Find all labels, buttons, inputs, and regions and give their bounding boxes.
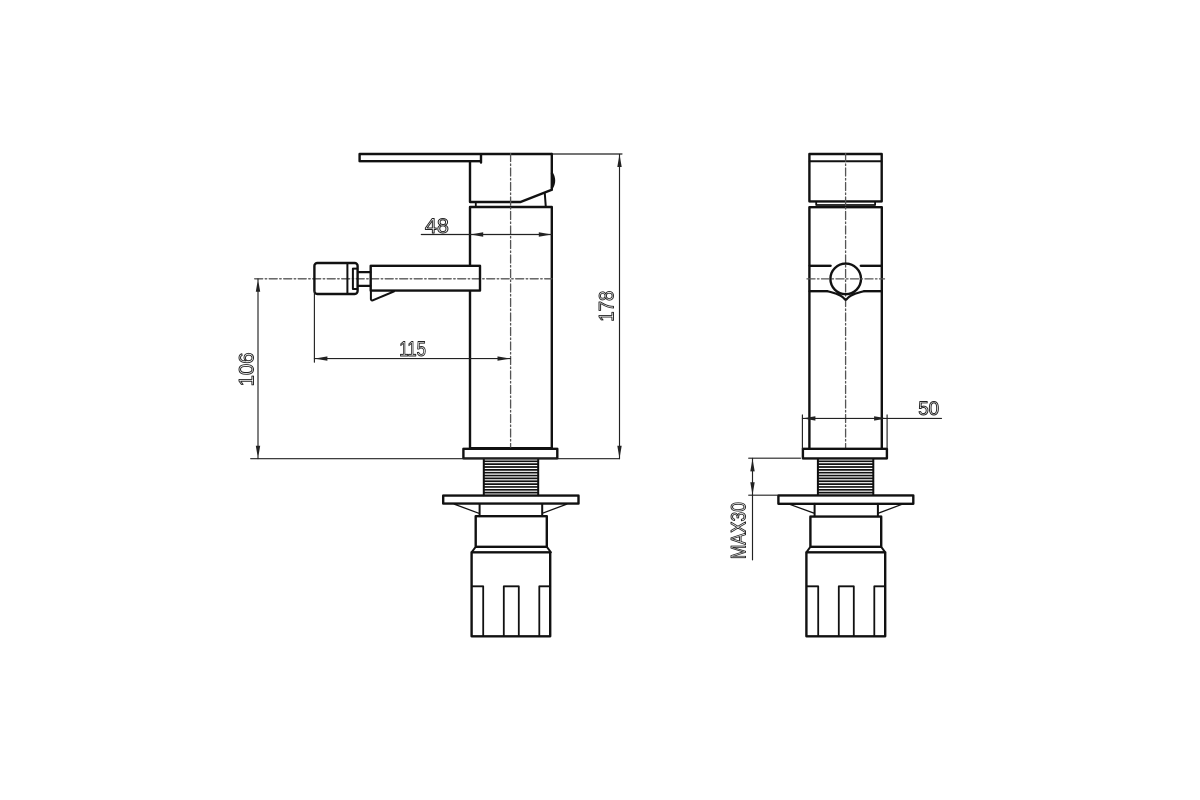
svg-text:106: 106 <box>236 352 259 386</box>
svg-text:50: 50 <box>918 399 939 420</box>
svg-text:MAX30: MAX30 <box>728 502 751 559</box>
svg-text:115: 115 <box>399 338 426 361</box>
svg-text:178: 178 <box>596 291 619 322</box>
svg-text:48: 48 <box>425 215 449 238</box>
